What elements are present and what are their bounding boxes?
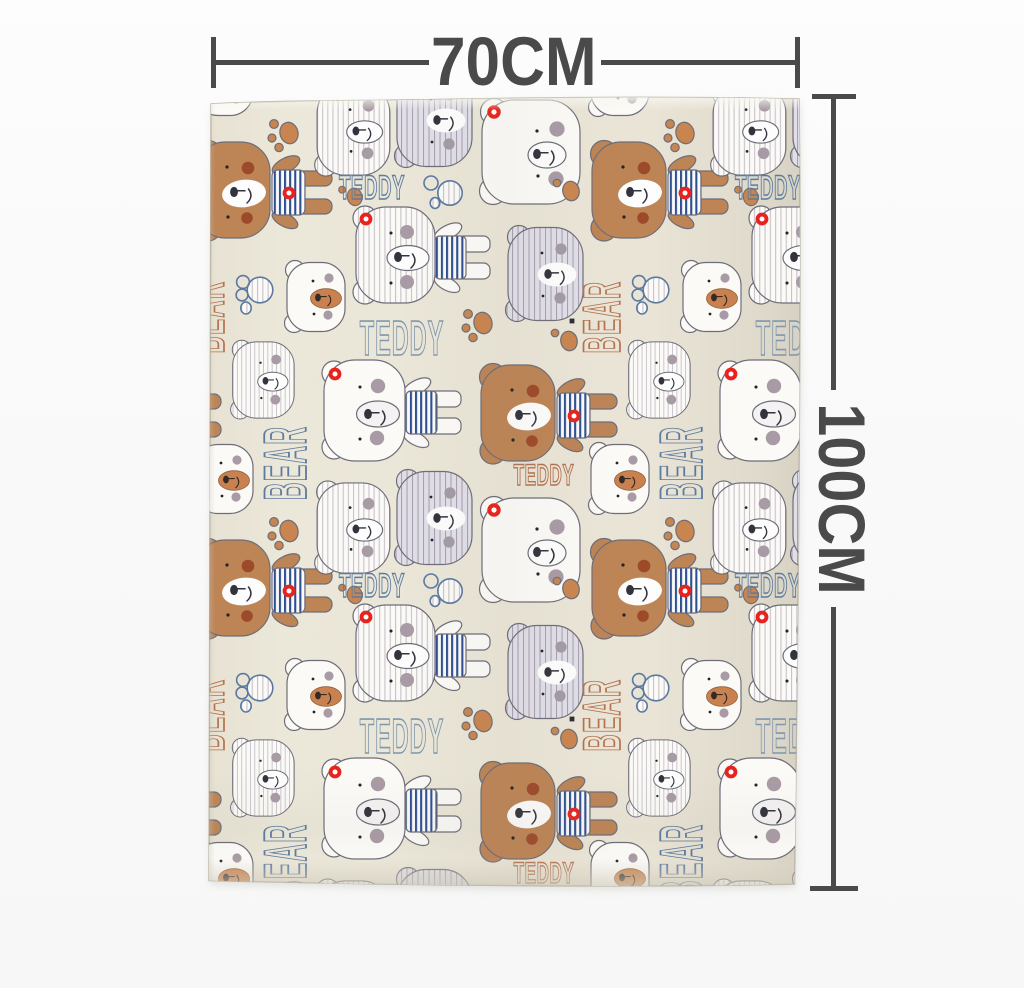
svg-text:TEDDY: TEDDY	[756, 710, 840, 765]
svg-text:BEAR: BEAR	[176, 679, 235, 752]
svg-text:TEDDY: TEDDY	[735, 168, 801, 206]
svg-text:TEDDY: TEDDY	[735, 566, 801, 604]
svg-text:TEDDY: TEDDY	[756, 312, 840, 367]
svg-text:BEAR: BEAR	[251, 426, 319, 501]
svg-text:BEAR: BEAR	[176, 281, 235, 354]
svg-text:BEAR: BEAR	[647, 426, 715, 501]
